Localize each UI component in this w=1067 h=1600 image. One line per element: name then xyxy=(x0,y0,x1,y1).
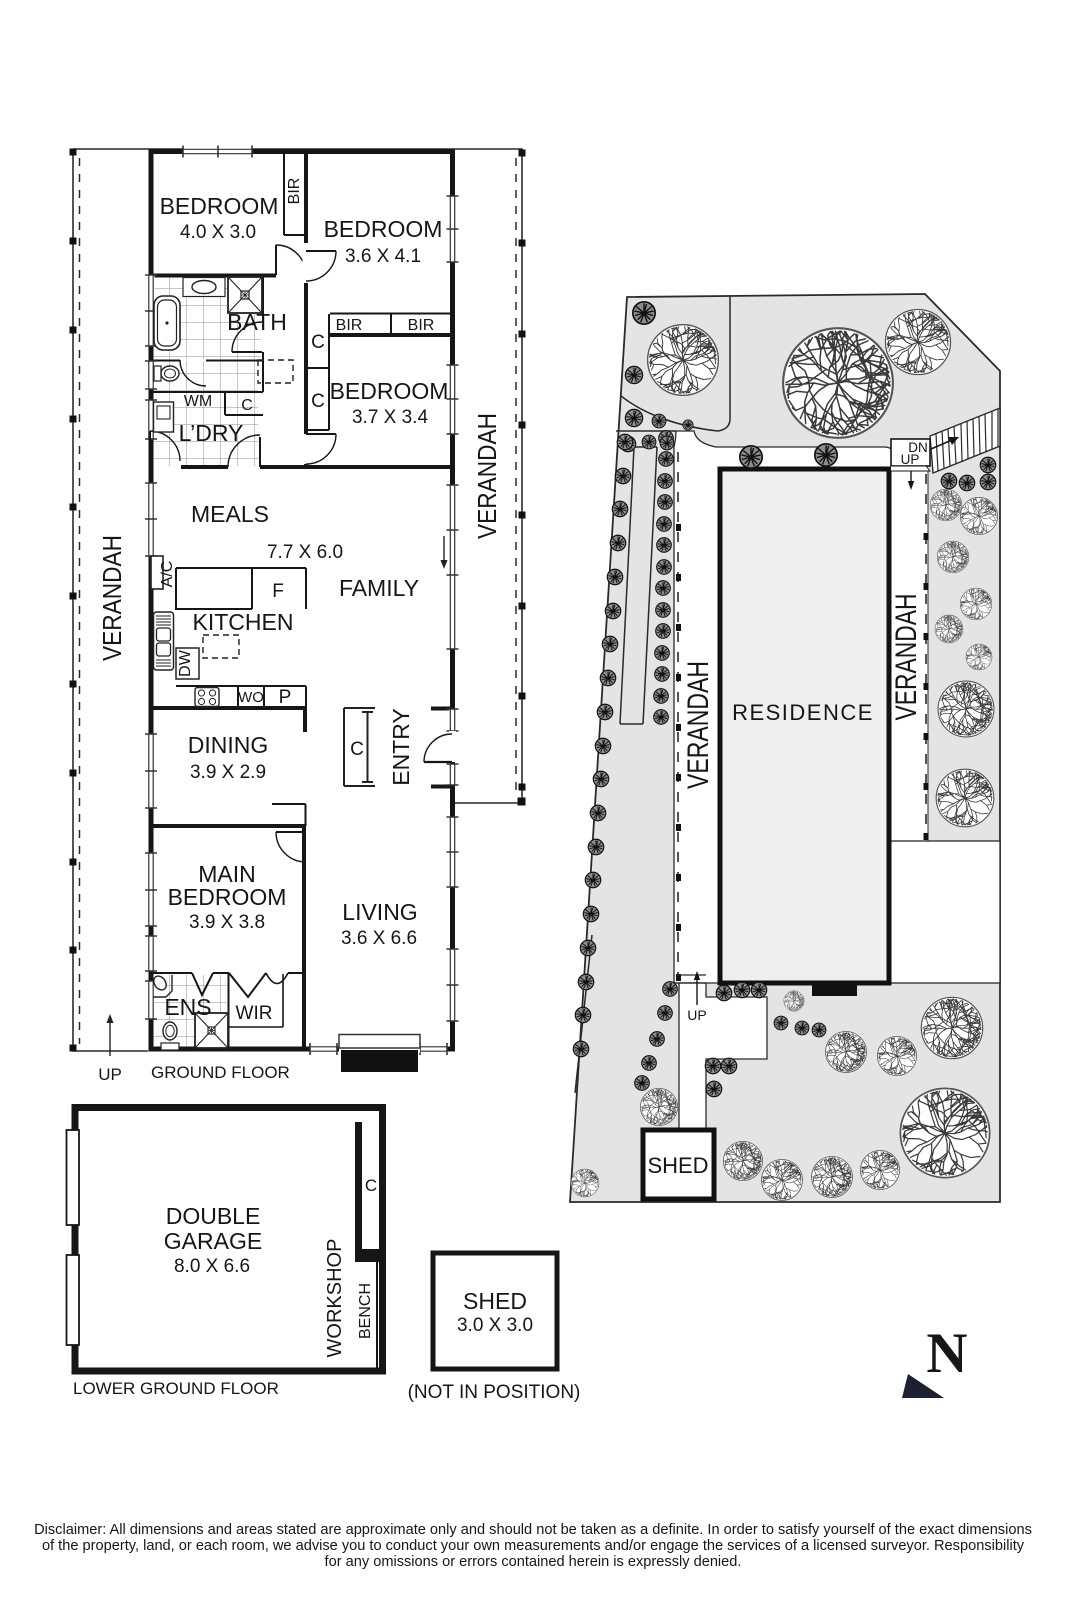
svg-text:C: C xyxy=(350,739,364,760)
svg-text:SHED: SHED xyxy=(647,1153,708,1178)
svg-text:LOWER GROUND FLOOR: LOWER GROUND FLOOR xyxy=(73,1379,279,1398)
svg-text:DINING: DINING xyxy=(188,732,269,758)
svg-text:UP: UP xyxy=(687,1007,706,1023)
svg-text:BEDROOM: BEDROOM xyxy=(330,378,449,404)
svg-text:KITCHEN: KITCHEN xyxy=(193,609,294,635)
svg-text:3.0 X 3.0: 3.0 X 3.0 xyxy=(457,1315,533,1336)
svg-text:WM: WM xyxy=(184,393,212,410)
svg-text:L’DRY: L’DRY xyxy=(179,420,244,446)
svg-text:for any omissions or errors co: for any omissions or errors contained he… xyxy=(325,1554,742,1570)
svg-text:ENTRY: ENTRY xyxy=(388,708,414,786)
svg-text:4.0 X 3.0: 4.0 X 3.0 xyxy=(180,222,256,243)
svg-text:Disclaimer: All dimensions and: Disclaimer: All dimensions and areas sta… xyxy=(34,1522,1032,1538)
svg-text:A/C: A/C xyxy=(159,561,176,588)
svg-text:GARAGE: GARAGE xyxy=(164,1228,262,1254)
svg-text:F: F xyxy=(272,581,284,602)
svg-text:8.0 X 6.6: 8.0 X 6.6 xyxy=(174,1256,250,1277)
svg-text:WO: WO xyxy=(238,689,264,706)
svg-text:C: C xyxy=(311,391,325,412)
svg-text:VERANDAH: VERANDAH xyxy=(97,535,127,661)
svg-text:(NOT IN POSITION): (NOT IN POSITION) xyxy=(408,1382,581,1403)
svg-text:3.6 X 4.1: 3.6 X 4.1 xyxy=(345,246,421,267)
svg-text:BIR: BIR xyxy=(286,178,303,205)
svg-text:DOUBLE: DOUBLE xyxy=(166,1203,261,1229)
svg-text:SHED: SHED xyxy=(463,1288,527,1314)
svg-text:UP: UP xyxy=(98,1065,122,1084)
svg-text:BIR: BIR xyxy=(336,317,363,334)
svg-text:7.7 X 6.0: 7.7 X 6.0 xyxy=(267,542,343,563)
svg-text:3.7 X 3.4: 3.7 X 3.4 xyxy=(352,407,428,428)
svg-text:LIVING: LIVING xyxy=(342,899,417,925)
svg-text:N: N xyxy=(926,1322,967,1385)
svg-text:DW: DW xyxy=(177,649,194,677)
svg-text:ENS: ENS xyxy=(164,994,211,1020)
svg-text:C: C xyxy=(241,397,253,414)
svg-text:BEDROOM: BEDROOM xyxy=(324,216,443,242)
svg-text:BATH: BATH xyxy=(227,309,287,335)
svg-text:VERANDAH: VERANDAH xyxy=(890,594,923,721)
svg-text:WIR: WIR xyxy=(236,1003,273,1024)
svg-text:BEDROOM: BEDROOM xyxy=(168,884,287,910)
svg-text:BIR: BIR xyxy=(408,317,435,334)
svg-text:3.9 X 3.8: 3.9 X 3.8 xyxy=(189,912,265,933)
svg-text:VERANDAH: VERANDAH xyxy=(682,661,715,789)
svg-text:of the property, land, or each: of the property, land, or each room, we … xyxy=(42,1538,1025,1554)
svg-text:3.9 X 2.9: 3.9 X 2.9 xyxy=(190,762,266,783)
svg-text:P: P xyxy=(279,687,292,708)
svg-text:BEDROOM: BEDROOM xyxy=(160,193,279,219)
svg-text:BENCH: BENCH xyxy=(357,1283,374,1339)
svg-text:C: C xyxy=(311,332,325,353)
svg-text:RESIDENCE: RESIDENCE xyxy=(732,700,874,725)
svg-text:GROUND FLOOR: GROUND FLOOR xyxy=(151,1063,290,1082)
svg-text:MEALS: MEALS xyxy=(191,501,269,527)
svg-text:3.6 X 6.6: 3.6 X 6.6 xyxy=(341,928,417,949)
svg-text:FAMILY: FAMILY xyxy=(339,575,419,601)
svg-text:WORKSHOP: WORKSHOP xyxy=(324,1239,346,1358)
svg-text:C: C xyxy=(365,1176,377,1195)
svg-text:VERANDAH: VERANDAH xyxy=(472,413,502,539)
svg-text:UP: UP xyxy=(901,452,920,467)
